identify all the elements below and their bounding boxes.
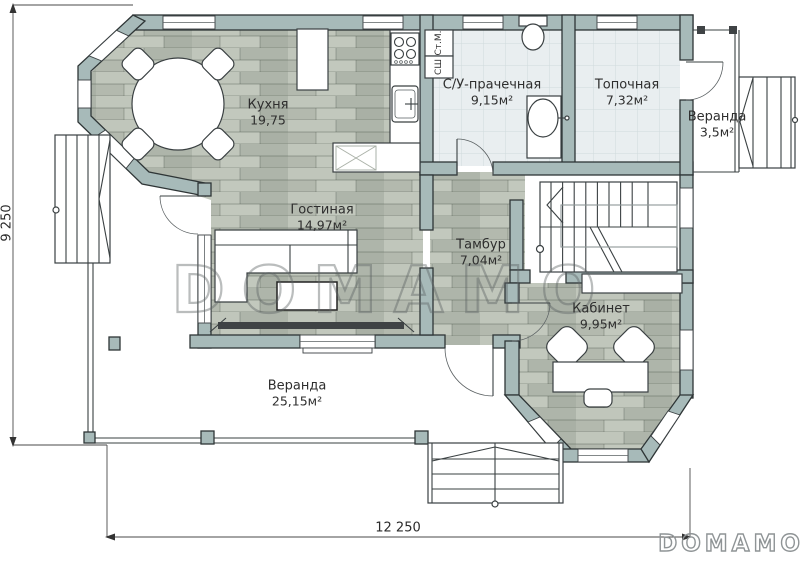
wall-hall-a [420, 175, 433, 230]
room-label-veranda-small: Веранда 3,5м² [688, 111, 747, 140]
room-name: Кухня [248, 99, 289, 114]
appliance-label-washer: Ст.М. [434, 30, 444, 55]
office-chair [584, 389, 612, 407]
door-boiler-veranda [686, 62, 723, 100]
wall-mid-b [493, 162, 693, 175]
room-area: 19,75 [248, 113, 289, 127]
room-label-office: Кабинет 9,95м² [572, 303, 630, 332]
room-label-boiler: Топочная 7,32м² [595, 79, 659, 108]
stairs-left-side [53, 135, 110, 263]
room-area: 25,15м² [268, 394, 327, 408]
room-name: С/У-прачечная [443, 79, 541, 94]
wall-bottom-b [375, 335, 445, 348]
door-living-side [160, 196, 198, 234]
room-name: Топочная [595, 79, 659, 94]
room-name: Веранда [688, 111, 747, 126]
room-area: 7,04м² [456, 253, 506, 267]
wall-bath-boiler [562, 15, 575, 167]
door-entry [445, 348, 493, 396]
room-area: 3,5м² [688, 125, 747, 139]
wall-right-a [680, 15, 693, 60]
room-label-kitchen: Кухня 19,75 [248, 99, 289, 128]
room-name: Гостиная [290, 204, 353, 219]
railing-post [84, 432, 95, 443]
room-name: Тамбур [456, 239, 506, 254]
office-desk [553, 362, 648, 392]
window-bay-w [78, 80, 91, 108]
room-name: Кабинет [572, 303, 630, 318]
window-sill [303, 348, 372, 353]
veranda-top-right [693, 26, 798, 172]
watermark-logo: DOMAMO [658, 531, 800, 557]
stove-icon [391, 33, 419, 65]
wall-mid-a [420, 162, 457, 175]
watermark-center: DOMAMO [172, 254, 613, 328]
appliance-label-dryer: СШ [434, 59, 444, 75]
window-right-mid [680, 188, 693, 228]
wall-left-a [198, 183, 211, 196]
room-label-veranda-big: Веранда 25,15м² [268, 380, 327, 409]
room-label-living: Гостиная 14,97м² [290, 204, 353, 233]
floor-plan: Кухня 19,75 С/У-прачечная 9,15м² Топочна… [0, 0, 800, 561]
room-area: 7,32м² [595, 93, 659, 107]
wall-bottom-a [190, 335, 300, 348]
kitchen-cabinet [297, 29, 328, 90]
stairs-entry [428, 443, 563, 507]
window-office-east [680, 330, 693, 370]
wall-office-west-b [505, 341, 519, 395]
room-area: 9,95м² [572, 317, 630, 331]
railing-post [201, 431, 214, 444]
room-name: Веранда [268, 380, 327, 395]
railing-post [415, 431, 428, 444]
room-area: 9,15м² [443, 93, 541, 107]
room-label-bathroom: С/У-прачечная 9,15м² [443, 79, 541, 108]
dimension-width: 12 250 [375, 521, 421, 536]
railing-post [109, 337, 120, 350]
room-label-hall: Тамбур 7,04м² [456, 239, 506, 268]
room-area: 14,97м² [290, 218, 353, 232]
dimension-height: 9 250 [0, 204, 15, 241]
